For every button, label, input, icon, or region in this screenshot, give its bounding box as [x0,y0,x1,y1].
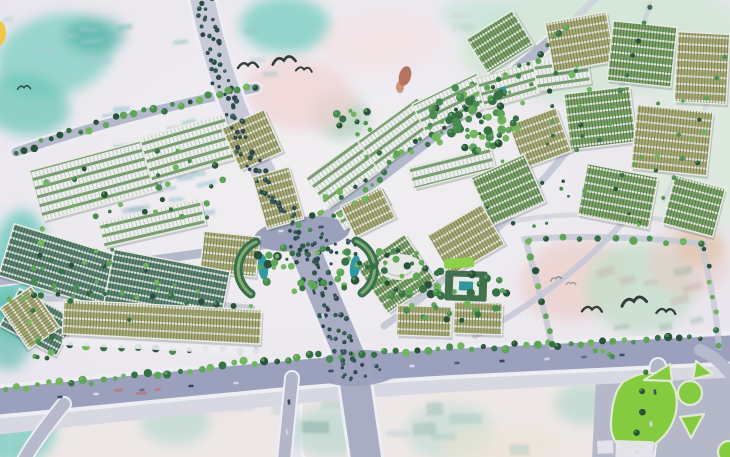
overlay-layer [0,0,730,457]
photo-haze-overlay [0,0,730,457]
master-plan-rendering [0,0,730,457]
master-plan-svg [0,0,730,457]
